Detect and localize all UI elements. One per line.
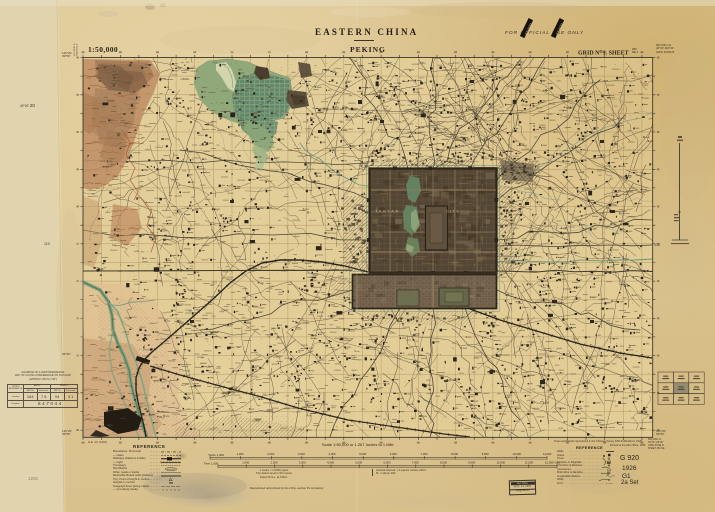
svg-text:11,000: 11,000 xyxy=(525,460,534,464)
svg-text:2,000: 2,000 xyxy=(271,460,278,464)
svg-text:1,000: 1,000 xyxy=(237,452,244,456)
svg-text:7,000: 7,000 xyxy=(412,460,419,464)
svg-text:10,000: 10,000 xyxy=(512,452,521,456)
svg-text:6,000: 6,000 xyxy=(384,460,391,464)
svg-text:Feet 1,000: Feet 1,000 xyxy=(204,461,219,465)
svg-text:5,000: 5,000 xyxy=(355,460,362,464)
svg-text:3,000: 3,000 xyxy=(298,452,305,456)
svg-text:11,000: 11,000 xyxy=(543,452,552,456)
svg-text:2,000: 2,000 xyxy=(267,452,274,456)
svg-text:Yards 1,000: Yards 1,000 xyxy=(208,453,224,457)
svg-text:7,000: 7,000 xyxy=(421,452,428,456)
svg-text:9,000: 9,000 xyxy=(468,460,475,464)
svg-text:9,000: 9,000 xyxy=(482,452,489,456)
svg-text:1,000: 1,000 xyxy=(242,460,249,464)
svg-text:8,000: 8,000 xyxy=(440,460,447,464)
svg-text:8,000: 8,000 xyxy=(451,452,458,456)
svg-text:4,000: 4,000 xyxy=(327,460,334,464)
svg-text:10,000: 10,000 xyxy=(497,460,506,464)
svg-text:5,000: 5,000 xyxy=(359,452,366,456)
svg-text:3,000: 3,000 xyxy=(299,460,306,464)
svg-text:4,000: 4,000 xyxy=(329,452,336,456)
svg-text:6,000: 6,000 xyxy=(390,452,397,456)
